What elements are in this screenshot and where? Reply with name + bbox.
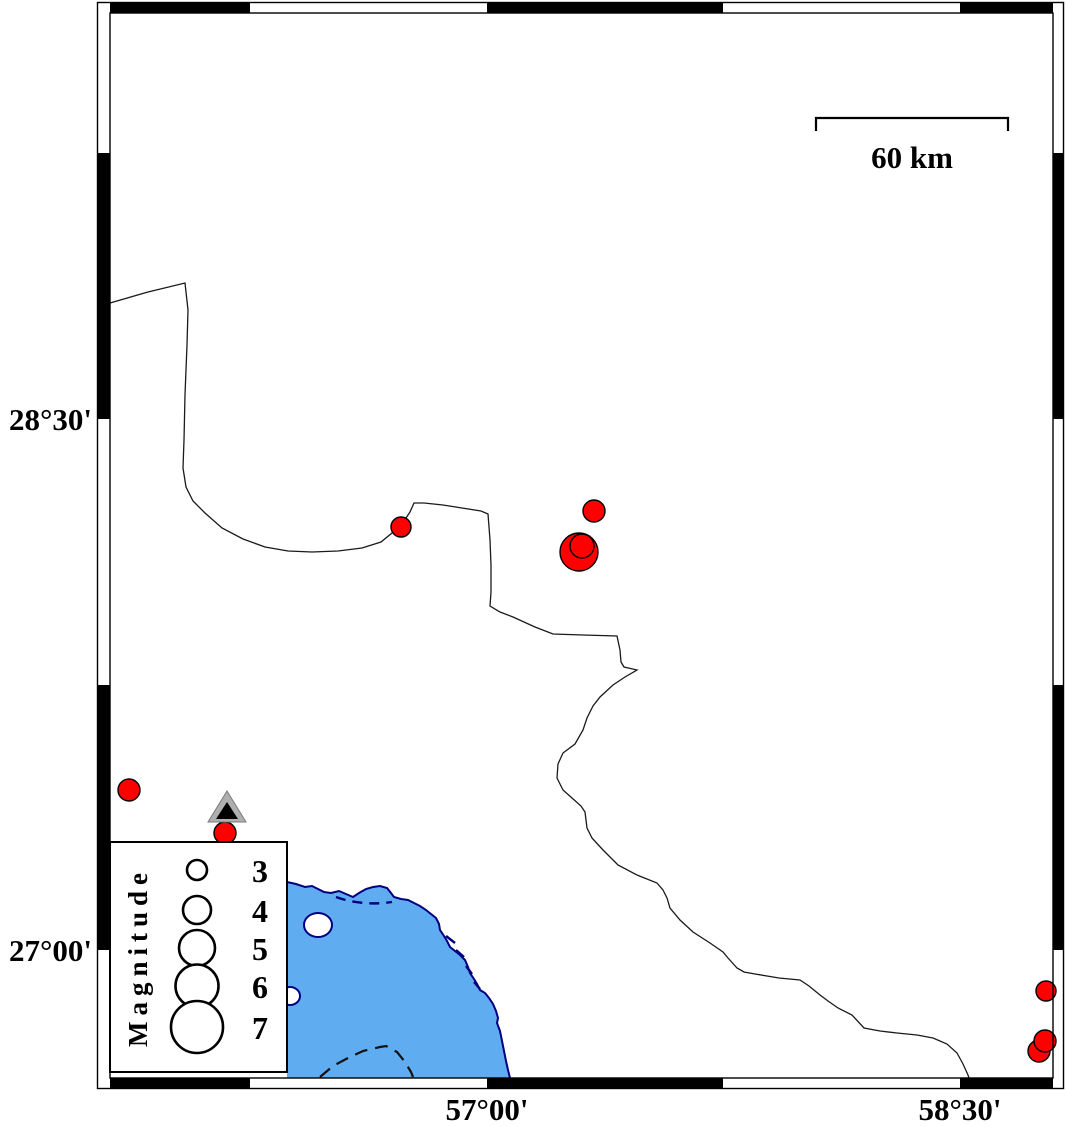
lon-label-58-30: 58°30'	[918, 1092, 1001, 1126]
lat-label-28-30: 28°30'	[9, 402, 92, 437]
legend-circle-4	[183, 896, 211, 924]
legend-value-4: 4	[252, 893, 268, 929]
epicenter-marker	[583, 500, 605, 522]
legend: Magnitude 3 4 5 6 7	[110, 842, 287, 1072]
epicenter-marker	[214, 822, 236, 844]
frame-seg	[98, 685, 111, 950]
epicenter-marker	[118, 779, 140, 801]
frame-seg	[1053, 153, 1064, 419]
legend-value-5: 5	[252, 931, 268, 967]
lon-label-57-00: 57°00'	[445, 1092, 528, 1126]
frame-seg	[960, 3, 1053, 14]
epicenter-marker	[570, 534, 594, 558]
frame-seg	[98, 153, 111, 419]
legend-value-6: 6	[252, 969, 268, 1005]
legend-circle-3	[187, 860, 207, 880]
legend-circle-7	[171, 1001, 223, 1053]
frame-seg	[487, 1078, 723, 1089]
frame-seg	[487, 3, 723, 14]
frame-seg	[960, 1078, 1053, 1089]
frame-seg	[1053, 685, 1064, 950]
legend-title: Magnitude	[123, 867, 153, 1047]
legend-circle-5	[179, 930, 215, 966]
epicenter-marker	[391, 517, 411, 537]
seismicity-map: Magnitude 3 4 5 6 7 28°30' 27°00' 57°00'	[0, 0, 1066, 1126]
island	[304, 913, 332, 937]
lat-label-27-00: 27°00'	[9, 933, 92, 968]
legend-value-3: 3	[252, 853, 268, 889]
frame-seg	[110, 3, 250, 14]
legend-value-7: 7	[252, 1010, 268, 1046]
frame-seg	[110, 1078, 250, 1089]
scale-bar-label: 60 km	[871, 140, 953, 175]
